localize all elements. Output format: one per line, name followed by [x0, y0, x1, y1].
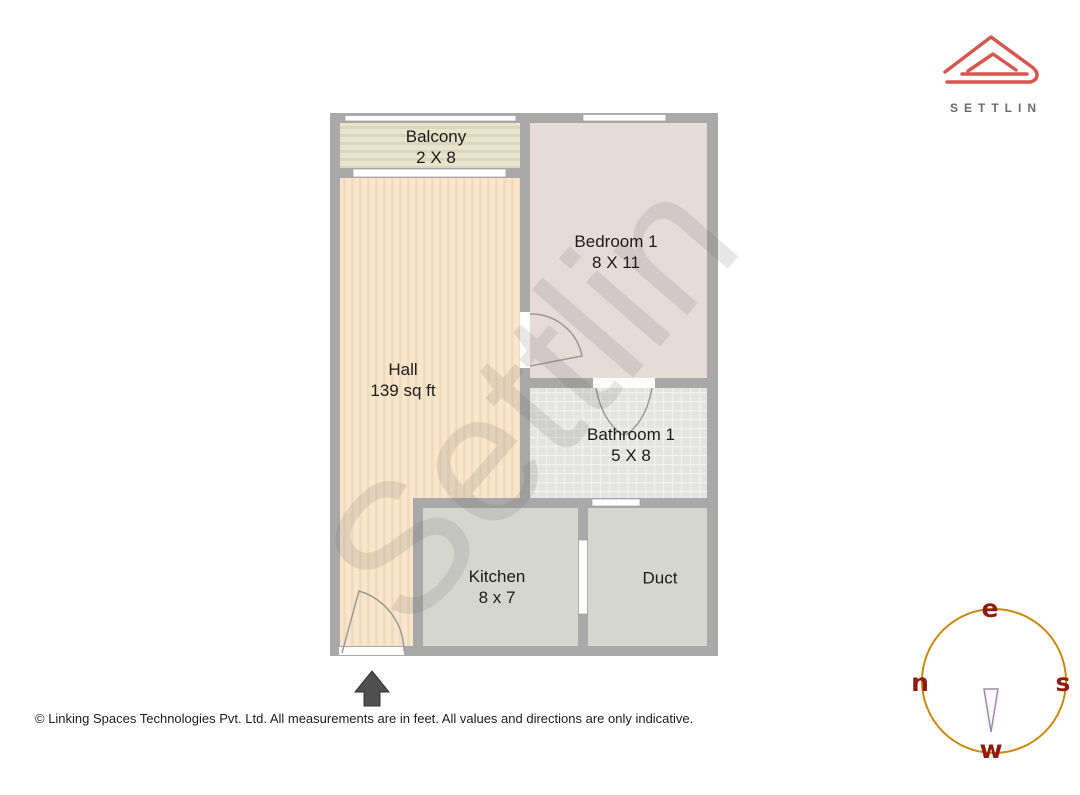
compass-direction-bottom: w	[979, 735, 1002, 764]
balcony-railing-window	[345, 116, 516, 122]
settlin-logo-icon	[941, 30, 1045, 92]
compass-ring	[922, 609, 1066, 753]
room-dimensions: 8 x 7	[469, 587, 526, 608]
room-dimensions: 8 X 11	[574, 252, 657, 273]
brand-block: SETTLIN	[928, 30, 1058, 115]
label-bathroom-1: Bathroom 1 5 X 8	[587, 424, 675, 466]
room-dimensions: 5 X 8	[587, 445, 675, 466]
disclaimer-text: © Linking Spaces Technologies Pvt. Ltd. …	[35, 711, 693, 726]
entrance-door-gap	[339, 647, 404, 655]
label-duct: Duct	[643, 568, 678, 589]
compass-direction-left: n	[911, 668, 929, 697]
kitchen-duct-opening	[579, 540, 588, 614]
room-dimensions: 2 X 8	[406, 147, 466, 168]
compass: e n s w	[905, 595, 1080, 764]
balcony-sliding-window	[353, 169, 506, 177]
room-name: Hall	[370, 359, 435, 380]
label-bedroom-1: Bedroom 1 8 X 11	[574, 231, 657, 273]
brand-name: SETTLIN	[928, 101, 1058, 115]
room-name: Bedroom 1	[574, 231, 657, 252]
room-name: Bathroom 1	[587, 424, 675, 445]
label-hall: Hall 139 sq ft	[370, 359, 435, 401]
room-name: Kitchen	[469, 566, 526, 587]
compass-direction-right: s	[1056, 668, 1071, 697]
bedroom-window	[583, 115, 666, 122]
compass-direction-top: e	[982, 595, 999, 623]
label-balcony: Balcony 2 X 8	[406, 126, 466, 168]
room-name: Duct	[643, 568, 678, 589]
compass-needle-icon	[984, 689, 998, 732]
label-kitchen: Kitchen 8 x 7	[469, 566, 526, 608]
bedroom-door-gap	[520, 312, 530, 368]
bathroom-window	[592, 499, 640, 506]
bathroom-door-gap	[593, 378, 655, 388]
room-name: Balcony	[406, 126, 466, 147]
entrance-arrow-icon	[352, 668, 392, 708]
room-dimensions: 139 sq ft	[370, 380, 435, 401]
